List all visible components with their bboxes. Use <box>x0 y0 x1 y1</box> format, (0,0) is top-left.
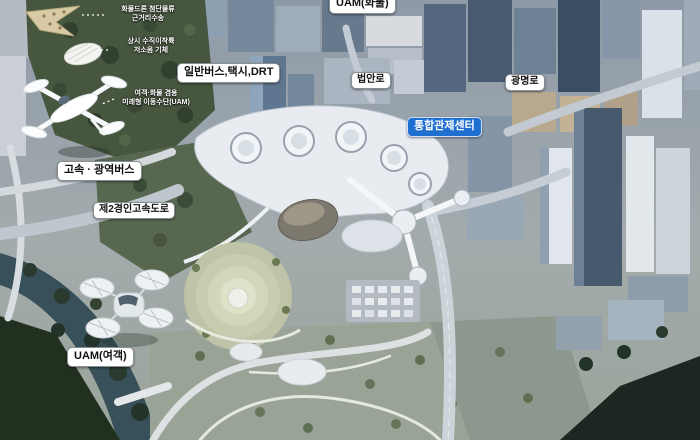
label-control-center: 통합관제센터 <box>407 117 482 137</box>
label-uam-cargo: UAM(화물) <box>329 0 396 14</box>
annotation-line: 미래형 이동수단(UAM) <box>114 99 198 108</box>
annotation-line: 저소음 기체 <box>112 47 190 56</box>
white-dome <box>278 359 326 385</box>
track-node <box>454 190 470 206</box>
label-bus-taxi-drt: 일반버스,택시,DRT <box>177 63 280 83</box>
annotation-line: 상시 수직이착륙 <box>112 38 190 47</box>
annotation-line: 화물드론 첨단물류 <box>109 6 187 15</box>
label-beopan-ro: 법안로 <box>351 72 391 89</box>
terminal-building <box>342 220 402 252</box>
parking-lot <box>346 280 420 322</box>
annotation-line: 여객·화물 겸용 <box>114 90 198 99</box>
label-expressway2: 제2경인고속도로 <box>93 202 175 219</box>
annotation-line: 근거리수송 <box>109 15 187 24</box>
annotation-airship: 상시 수직이착륙 저소음 기체 <box>112 38 190 56</box>
label-express-bus: 고속 · 광역버스 <box>57 161 142 181</box>
annotation-uam-craft: 여객·화물 겸용 미래형 이동수단(UAM) <box>114 90 198 108</box>
small-dome <box>230 343 262 361</box>
aerial-scene <box>0 0 700 440</box>
label-gwangmyeong-ro: 광명로 <box>505 74 545 91</box>
uam-shadow <box>58 146 110 158</box>
label-uam-passenger: UAM(여객) <box>67 347 134 367</box>
annotation-cargo-drone: 화물드론 첨단물류 근거리수송 <box>109 6 187 24</box>
aerial-render-image: 화물드론 첨단물류 근거리수송 상시 수직이착륙 저소음 기체 여객·화물 겸용… <box>0 0 700 440</box>
